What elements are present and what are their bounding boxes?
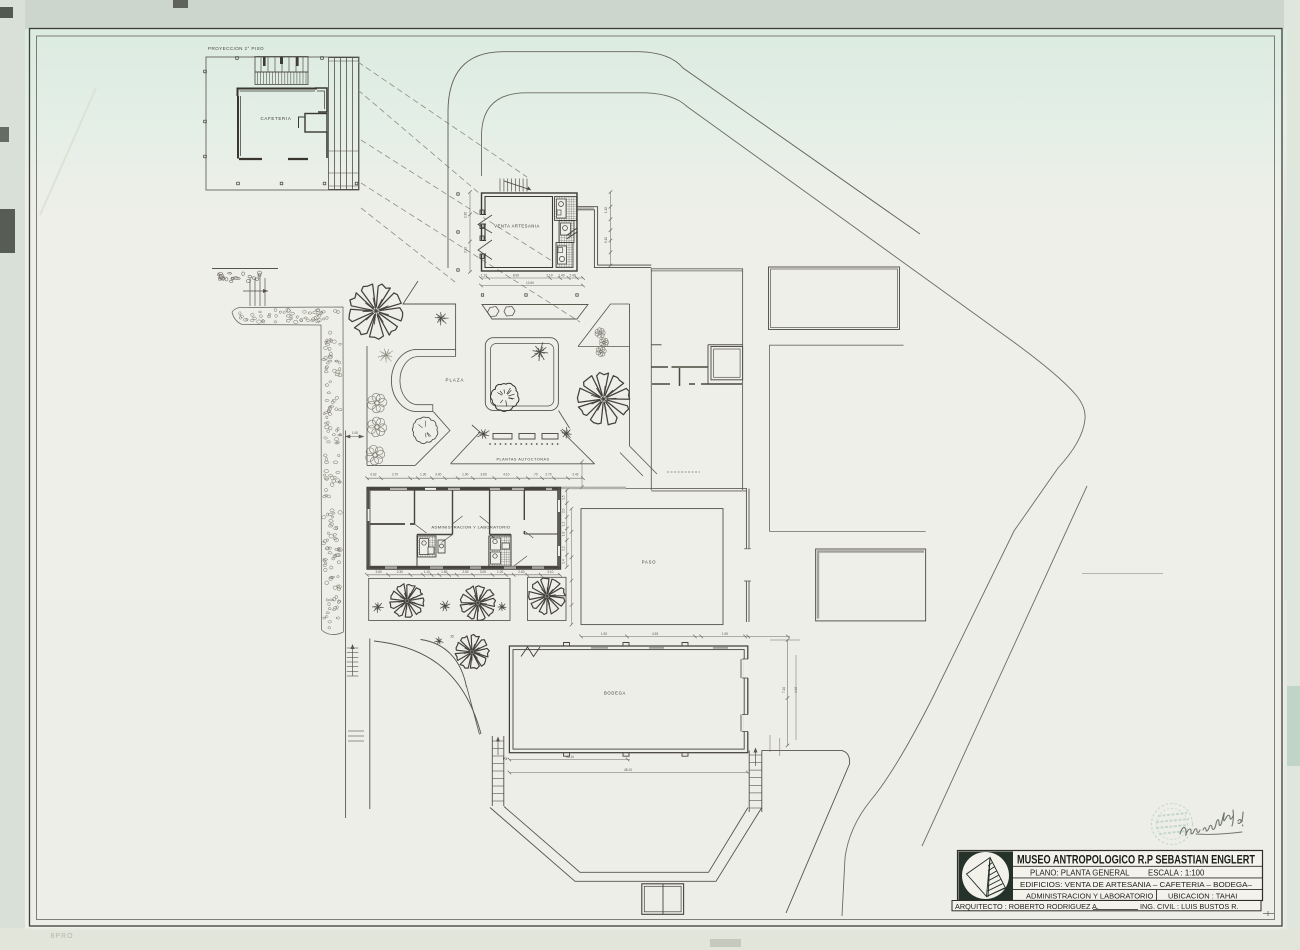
svg-text:4.10: 4.10 [503,473,509,477]
svg-text:1.4: 1.4 [562,559,566,564]
svg-text:ARQUITECTO : ROBERTO RODRIG: ARQUITECTO : ROBERTO RODRIGUEZ A. [955,902,1099,911]
svg-text:ADMINISTRACION Y LABORATORIO: ADMINISTRACION Y LABORATORIO [1026,892,1154,901]
svg-text:UBICACION : TAHAI: UBICACION : TAHAI [1168,892,1237,901]
svg-text:2.60: 2.60 [518,570,524,574]
svg-text:3.60: 3.60 [375,570,381,574]
svg-text:8.90: 8.90 [513,273,519,277]
svg-text:1.00: 1.00 [352,431,358,435]
svg-text:2.70: 2.70 [392,473,398,477]
svg-text:1.30: 1.30 [420,473,426,477]
svg-text:3.10: 3.10 [547,570,553,574]
svg-text:4.35: 4.35 [652,632,658,636]
svg-text:1.20: 1.20 [497,570,503,574]
svg-text:1.10: 1.10 [604,207,608,213]
svg-text:3.60: 3.60 [481,473,487,477]
svg-text:35: 35 [450,635,454,639]
svg-text:1.8: 1.8 [562,531,566,536]
svg-text:2.42: 2.42 [572,473,578,477]
svg-text:3.05: 3.05 [480,570,486,574]
svg-text:46.10: 46.10 [566,755,574,759]
svg-text:12.60: 12.60 [526,281,534,285]
svg-text:1.55: 1.55 [441,570,447,574]
svg-text:2.40: 2.40 [569,273,575,277]
svg-text:8PRO: 8PRO [50,933,73,940]
svg-text:BODEGA: BODEGA [604,691,626,696]
svg-text:PLANTAS AUTOCTONAS: PLANTAS AUTOCTONAS [496,457,549,461]
svg-text:48.10: 48.10 [624,768,632,772]
svg-text:2.30: 2.30 [464,212,468,218]
svg-text:1.90: 1.90 [722,632,728,636]
svg-text:2.0: 2.0 [562,508,566,513]
svg-text:CAFETERIA: CAFETERIA [261,116,292,121]
svg-text:1.2: 1.2 [562,521,566,526]
svg-text:2.70: 2.70 [545,473,551,477]
svg-text:1.90: 1.90 [462,473,468,477]
svg-text:1.10: 1.10 [424,570,430,574]
svg-text:ING. CIVIL : LUIS BUSTOS: ING. CIVIL : LUIS BUSTOS R. [1140,902,1239,911]
svg-text:.70: .70 [533,473,538,477]
svg-text:ESCALA : 1:100: ESCALA : 1:100 [1148,868,1205,877]
svg-text:2.30: 2.30 [397,570,403,574]
svg-text:3.00: 3.00 [435,473,441,477]
svg-text:MUSEO ANTROPOLOGICO R.P SEBAST: MUSEO ANTROPOLOGICO R.P SEBASTIAN ENGLER… [1017,855,1255,867]
svg-text:PROYECCION 2° PISO: PROYECCION 2° PISO [208,46,264,51]
svg-text:2.50: 2.50 [462,570,468,574]
svg-text:7.10: 7.10 [782,687,786,693]
svg-text:1.10: 1.10 [481,273,487,277]
svg-text:2.10: 2.10 [546,273,552,277]
svg-text:VENTA ARTESANIA: VENTA ARTESANIA [494,224,540,229]
svg-text:PLAZA: PLAZA [446,378,465,383]
svg-text:1.40: 1.40 [558,273,564,277]
svg-text:1.5: 1.5 [562,495,566,500]
svg-text:ADMINISTRACION Y LABORATORIO: ADMINISTRACION Y LABORATORIO [431,525,510,530]
svg-text:0.62: 0.62 [370,473,376,477]
svg-text:PLANO: PLANTA GENERAL: PLANO: PLANTA GENERAL [1030,868,1130,877]
svg-text:5.10: 5.10 [604,237,608,243]
svg-text:2.2: 2.2 [562,546,566,551]
svg-text:EDIFICIOS: VENTA DE ARTESANI: EDIFICIOS: VENTA DE ARTESANIA – CAFETERI… [1020,880,1253,889]
svg-text:3.10: 3.10 [464,247,468,253]
svg-text:1.90: 1.90 [601,632,607,636]
svg-text:PASO: PASO [642,560,657,565]
